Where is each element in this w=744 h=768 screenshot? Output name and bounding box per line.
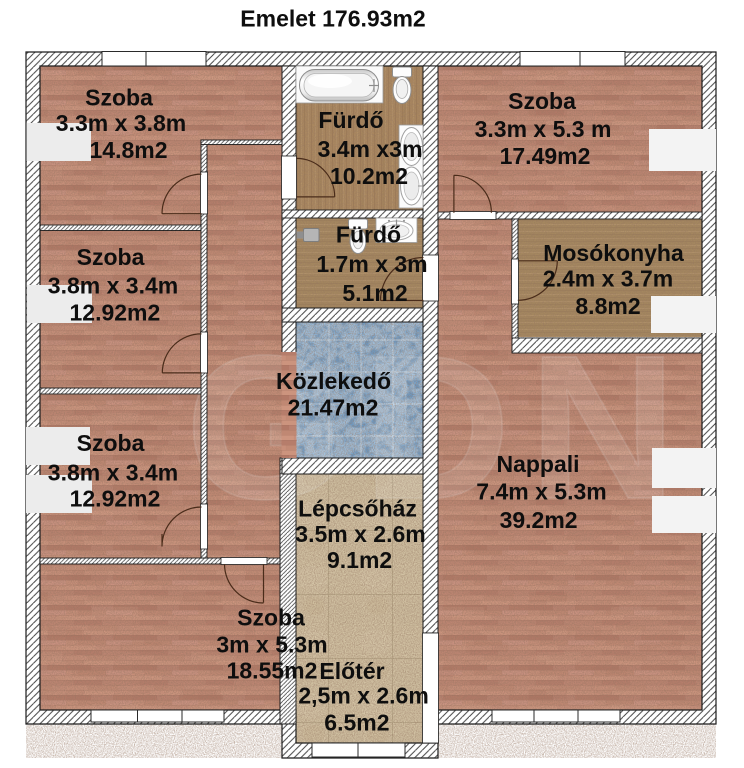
svg-text:Előtér: Előtér [319, 658, 384, 684]
svg-text:Mosókonyha: Mosókonyha [543, 240, 684, 266]
svg-text:3.3m x 5.3 m: 3.3m x 5.3 m [475, 116, 612, 142]
svg-text:10.2m2: 10.2m2 [330, 163, 408, 189]
svg-text:3.3m x 3.8m: 3.3m x 3.8m [56, 110, 186, 136]
svg-text:2,5m x 2.6m: 2,5m x 2.6m [298, 683, 428, 709]
svg-text:Lépcsőház: Lépcsőház [298, 496, 417, 522]
svg-text:9.1m2: 9.1m2 [327, 547, 392, 573]
svg-text:12.92m2: 12.92m2 [70, 486, 161, 512]
svg-text:5.1m2: 5.1m2 [342, 280, 407, 306]
svg-text:Szoba: Szoba [77, 244, 145, 270]
svg-text:Emelet 176.93m2: Emelet 176.93m2 [240, 6, 425, 32]
svg-text:17.49m2: 17.49m2 [500, 143, 591, 169]
svg-text:Fürdő: Fürdő [318, 107, 383, 133]
svg-text:12.92m2: 12.92m2 [69, 299, 160, 325]
svg-text:3.5m x 2.6m: 3.5m x 2.6m [295, 521, 425, 547]
svg-text:21.47m2: 21.47m2 [288, 395, 379, 421]
svg-text:3.4m x3m: 3.4m x3m [318, 136, 423, 162]
svg-text:14.8m2: 14.8m2 [89, 137, 167, 163]
svg-text:1.7m x 3m: 1.7m x 3m [316, 251, 427, 277]
svg-text:2.4m x 3.7m: 2.4m x 3.7m [543, 266, 673, 292]
svg-text:Közlekedő: Közlekedő [276, 368, 391, 394]
svg-text:3.8m x 3.4m: 3.8m x 3.4m [48, 460, 178, 486]
svg-text:18.55m2: 18.55m2 [227, 658, 318, 684]
svg-text:Szoba: Szoba [508, 88, 576, 114]
svg-text:8.8m2: 8.8m2 [575, 293, 640, 319]
svg-text:3.8m x 3.4m: 3.8m x 3.4m [48, 272, 178, 298]
svg-text:6.5m2: 6.5m2 [324, 710, 389, 736]
svg-text:Nappali: Nappali [496, 451, 579, 477]
svg-text:3m x 5.3m: 3m x 5.3m [216, 632, 327, 658]
svg-text:7.4m x 5.3m: 7.4m x 5.3m [476, 479, 606, 505]
svg-text:Szoba: Szoba [85, 85, 153, 111]
svg-text:39.2m2: 39.2m2 [500, 507, 578, 533]
svg-text:Szoba: Szoba [77, 430, 145, 456]
svg-text:Fürdő: Fürdő [336, 222, 401, 248]
svg-text:Szoba: Szoba [237, 605, 305, 631]
